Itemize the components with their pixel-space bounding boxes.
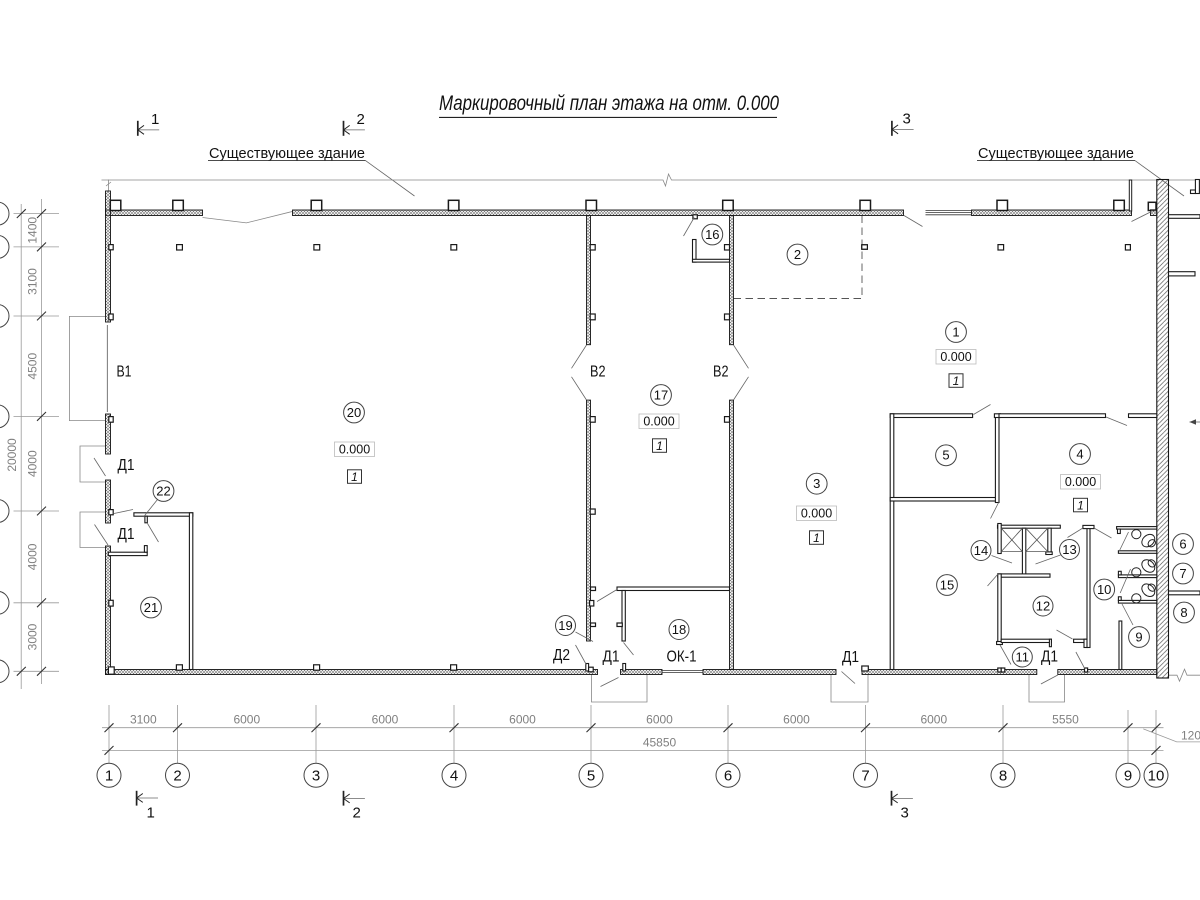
svg-text:2: 2 (353, 805, 361, 822)
svg-text:7: 7 (1179, 566, 1186, 581)
svg-text:16: 16 (705, 227, 719, 242)
svg-text:В2: В2 (713, 364, 729, 381)
svg-text:20000: 20000 (5, 438, 19, 472)
svg-text:Д1: Д1 (118, 526, 135, 543)
svg-text:13: 13 (1062, 542, 1076, 557)
svg-text:15: 15 (940, 577, 954, 592)
svg-text:9: 9 (1124, 768, 1132, 785)
svg-text:0.000: 0.000 (1065, 475, 1096, 489)
svg-text:5: 5 (587, 768, 595, 785)
svg-text:18: 18 (672, 622, 686, 637)
svg-text:6: 6 (1179, 536, 1186, 551)
svg-text:6000: 6000 (920, 713, 947, 727)
svg-text:4000: 4000 (26, 543, 40, 570)
svg-text:В2: В2 (590, 364, 606, 381)
svg-text:3100: 3100 (130, 713, 157, 727)
svg-text:2: 2 (357, 111, 365, 128)
svg-text:Д1: Д1 (118, 457, 135, 474)
svg-text:Д1: Д1 (842, 649, 859, 666)
svg-text:22: 22 (156, 483, 170, 498)
svg-text:2: 2 (794, 247, 801, 262)
svg-text:7: 7 (861, 768, 869, 785)
svg-text:12: 12 (1036, 598, 1050, 613)
svg-text:3: 3 (903, 111, 911, 128)
svg-text:Существующее здание: Существующее здание (209, 145, 365, 162)
svg-text:0.000: 0.000 (643, 414, 674, 428)
svg-text:3: 3 (901, 805, 909, 822)
svg-text:1: 1 (351, 470, 358, 484)
svg-text:6000: 6000 (372, 713, 399, 727)
svg-text:1: 1 (953, 374, 960, 388)
svg-text:6000: 6000 (233, 713, 260, 727)
svg-text:1: 1 (105, 768, 113, 785)
svg-text:1400: 1400 (26, 217, 40, 244)
svg-text:21: 21 (144, 600, 158, 615)
svg-text:Д1: Д1 (603, 649, 620, 666)
svg-text:Д2: Д2 (553, 647, 570, 664)
svg-text:4: 4 (1076, 446, 1083, 461)
svg-text:3: 3 (312, 768, 320, 785)
svg-text:8: 8 (1180, 605, 1187, 620)
svg-text:0.000: 0.000 (339, 442, 370, 456)
svg-text:10: 10 (1097, 582, 1111, 597)
svg-text:4: 4 (450, 768, 458, 785)
svg-text:1: 1 (1077, 499, 1084, 513)
svg-text:Д1: Д1 (1041, 649, 1058, 666)
svg-text:ОК-1: ОК-1 (667, 649, 697, 666)
svg-text:17: 17 (654, 387, 668, 402)
svg-text:1: 1 (151, 111, 159, 128)
svg-text:5550: 5550 (1052, 713, 1079, 727)
svg-text:5: 5 (942, 448, 949, 463)
svg-text:0.000: 0.000 (801, 506, 832, 520)
svg-text:0.000: 0.000 (940, 350, 971, 364)
svg-text:1: 1 (952, 324, 959, 339)
svg-text:10: 10 (1148, 768, 1165, 785)
svg-text:4500: 4500 (26, 353, 40, 380)
svg-text:19: 19 (558, 618, 572, 633)
svg-text:14: 14 (974, 543, 988, 558)
svg-text:6000: 6000 (783, 713, 810, 727)
svg-text:8: 8 (999, 768, 1007, 785)
svg-text:1: 1 (656, 439, 663, 453)
svg-text:3: 3 (813, 476, 820, 491)
svg-text:1: 1 (813, 531, 820, 545)
svg-text:4000: 4000 (26, 450, 40, 477)
svg-text:11: 11 (1016, 649, 1030, 664)
svg-text:2: 2 (173, 768, 181, 785)
svg-text:20: 20 (347, 405, 361, 420)
svg-text:6000: 6000 (646, 713, 673, 727)
svg-text:3000: 3000 (26, 623, 40, 650)
svg-text:В1: В1 (117, 364, 132, 381)
svg-text:120: 120 (1181, 729, 1200, 743)
svg-text:1: 1 (147, 805, 155, 822)
svg-text:Маркировочный план этажа на от: Маркировочный план этажа на отм. 0.000 (439, 92, 779, 115)
svg-text:6000: 6000 (509, 713, 536, 727)
svg-text:Существующее здание: Существующее здание (978, 145, 1134, 162)
svg-text:3100: 3100 (26, 268, 40, 295)
svg-text:45850: 45850 (643, 735, 677, 749)
svg-text:6: 6 (724, 768, 732, 785)
svg-text:9: 9 (1135, 629, 1142, 644)
